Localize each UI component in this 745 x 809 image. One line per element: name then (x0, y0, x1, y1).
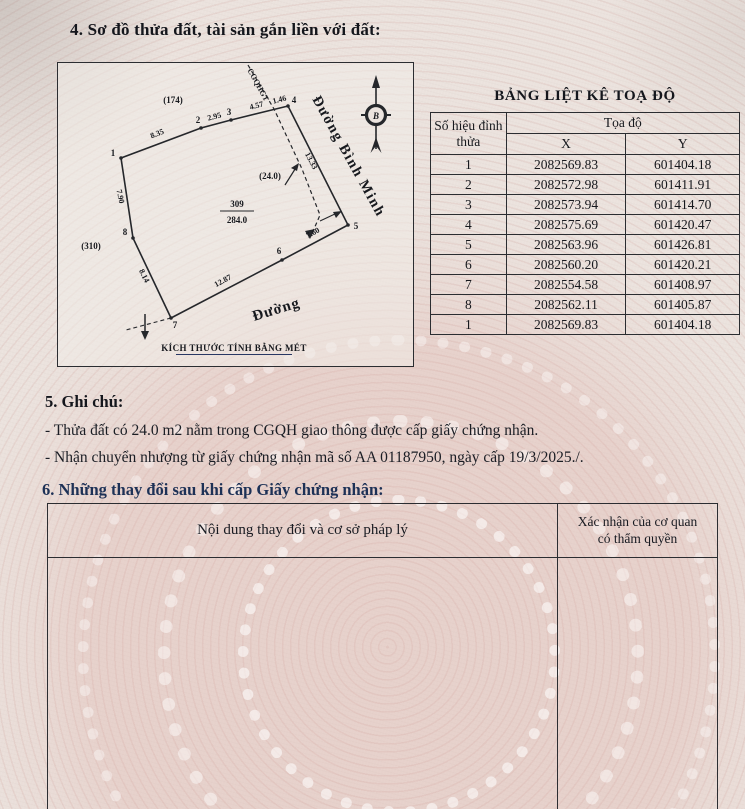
coord-row: 32082573.94601414.70 (431, 195, 740, 215)
vertex-5-label: 5 (354, 221, 359, 231)
parcel-diagram: B Đường Bình Minh Đường (174) (310) 309 … (57, 62, 414, 367)
coord-header-coords: Tọa độ (506, 113, 739, 134)
planning-area-label: (24.0) (259, 171, 281, 181)
edge-3-4-label: 4.57 (249, 100, 265, 112)
coord-x: 2082563.96 (506, 235, 626, 255)
coord-row: 82082562.11601405.87 (431, 295, 740, 315)
coord-header-y: Y (626, 134, 740, 155)
coord-header-vertex: Số hiệu đỉnh thửa (431, 113, 507, 155)
vertex-id: 3 (431, 195, 507, 215)
compass-letter: B (372, 111, 379, 121)
vertex-id: 1 (431, 315, 507, 335)
coord-x: 2082562.11 (506, 295, 626, 315)
coord-y: 601404.18 (626, 315, 740, 335)
parcel-area-label: 284.0 (227, 215, 248, 225)
changes-table-header: Nội dung thay đổi và cơ sở pháp lý Xác n… (48, 504, 717, 558)
edge-1-8-label: 7.90 (115, 189, 127, 205)
vertex-id: 2 (431, 175, 507, 195)
section6-title: 6. Những thay đổi sau khi cấp Giấy chứng… (42, 480, 384, 500)
vertex-7-label: 7 (173, 320, 178, 330)
vertex-4-label: 4 (292, 95, 297, 105)
vertex-id: 6 (431, 255, 507, 275)
coord-y: 601426.81 (626, 235, 740, 255)
coord-x: 2082569.83 (506, 315, 626, 335)
coord-row: 52082563.96601426.81 (431, 235, 740, 255)
coord-y: 601405.87 (626, 295, 740, 315)
coord-header-x: X (506, 134, 626, 155)
area-arrow-head (291, 163, 299, 171)
coord-table-body: 12082569.83601404.1822082572.98601411.91… (431, 155, 740, 335)
changes-col1-header: Nội dung thay đổi và cơ sở pháp lý (48, 504, 557, 557)
coord-table-title: BẢNG LIỆT KÊ TOẠ ĐỘ (430, 88, 740, 105)
coord-x: 2082554.58 (506, 275, 626, 295)
vertex-id: 7 (431, 275, 507, 295)
changes-col2-header-line2: có thẩm quyền (598, 531, 677, 548)
section4-title: 4. Sơ đồ thửa đất, tài sản gắn liền với … (70, 20, 381, 40)
coord-row: 42082575.69601420.47 (431, 215, 740, 235)
coord-x: 2082560.20 (506, 255, 626, 275)
adjacent-parcel-top-label: (174) (163, 95, 183, 105)
vertex-2-label: 2 (196, 115, 201, 125)
document-page: 4. Sơ đồ thửa đất, tài sản gắn liền với … (0, 0, 745, 809)
coord-y: 601408.97 (626, 275, 740, 295)
coord-y: 601411.91 (626, 175, 740, 195)
planning-line-label: CGQHGT (246, 67, 272, 103)
edge-4-5-label: 13.33 (303, 151, 319, 171)
vertex-6-label: 6 (277, 246, 282, 256)
coord-row: 22082572.98601411.91 (431, 175, 740, 195)
section5-title: 5. Ghi chú: (45, 392, 123, 412)
planning-side-arrowhead (333, 211, 342, 218)
section5-note-1: - Thửa đất có 24.0 m2 nằm trong CGQH gia… (45, 422, 538, 440)
coord-y: 601414.70 (626, 195, 740, 215)
vertex-1-label: 1 (111, 148, 116, 158)
changes-col2-header-line1: Xác nhận của cơ quan (578, 514, 698, 531)
edge-1-2-label: 8.35 (149, 127, 165, 140)
coord-x: 2082572.98 (506, 175, 626, 195)
changes-col2-header: Xác nhận của cơ quan có thẩm quyền (557, 504, 717, 557)
section5-note-2: - Nhận chuyển nhượng từ giấy chứng nhận … (45, 449, 584, 467)
coord-y: 601404.18 (626, 155, 740, 175)
coord-row: 72082554.58601408.97 (431, 275, 740, 295)
coord-y: 601420.47 (626, 215, 740, 235)
edge-2-3-label: 2.95 (206, 110, 222, 122)
edge-7-8-label: 8.14 (137, 268, 151, 285)
edge-5-6-label: 7.60 (305, 226, 322, 241)
coord-x: 2082569.83 (506, 155, 626, 175)
changes-table: Nội dung thay đổi và cơ sở pháp lý Xác n… (47, 503, 718, 809)
vertex-3-label: 3 (227, 107, 232, 117)
adjacent-parcel-left-label: (310) (81, 241, 101, 251)
vertex-id: 5 (431, 235, 507, 255)
coord-x: 2082573.94 (506, 195, 626, 215)
down-arrow-head (141, 331, 149, 340)
coord-row: 12082569.83601404.18 (431, 315, 740, 335)
vertex-id: 1 (431, 155, 507, 175)
coord-row: 62082560.20601420.21 (431, 255, 740, 275)
north-arrow-icon: B (361, 75, 391, 153)
boundary-extension-line (126, 318, 171, 330)
parcel-diagram-svg: B Đường Bình Minh Đường (174) (310) 309 … (58, 63, 413, 366)
coord-x: 2082575.69 (506, 215, 626, 235)
coord-table: Số hiệu đỉnh thửa Tọa độ X Y 12082569.83… (430, 112, 740, 335)
changes-table-body (48, 558, 717, 809)
coord-row: 12082569.83601404.18 (431, 155, 740, 175)
street-name-bottom: Đường (250, 295, 302, 325)
vertex-id: 4 (431, 215, 507, 235)
coord-y: 601420.21 (626, 255, 740, 275)
changes-col2-body (557, 558, 717, 809)
vertex-id: 8 (431, 295, 507, 315)
scale-footnote: KÍCH THƯỚC TÍNH BẰNG MÉT (161, 343, 306, 353)
edge-4-crossing-label: 1.46 (272, 94, 288, 106)
parcel-number-label: 309 (230, 199, 244, 209)
vertex-8-label: 8 (123, 227, 128, 237)
changes-col1-body (48, 558, 557, 809)
